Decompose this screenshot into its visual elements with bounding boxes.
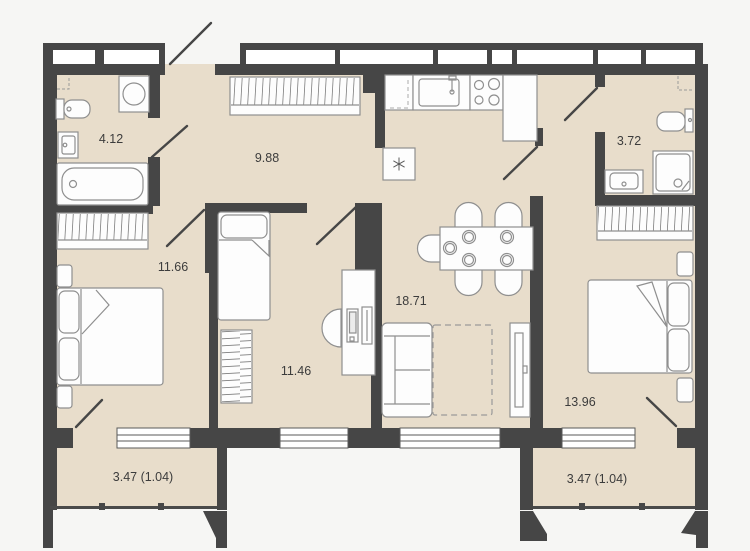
floor-plan-canvas: 4.12 9.88 3.72 11.66 18.71 11.46 13.96 3…: [0, 0, 750, 551]
window-pane: [517, 50, 593, 64]
wall-bedroom-left-middle: [209, 273, 218, 430]
room-label-balcony-left: 3.47 (1.04): [113, 470, 173, 484]
wardrobe-rail: [222, 331, 251, 402]
dining-chair: [495, 269, 522, 296]
window-pane: [598, 50, 641, 64]
nightstand: [57, 265, 72, 287]
pillow: [59, 291, 79, 333]
facade-window-panes: [53, 50, 695, 64]
wall-hall-kitchen-pillar: [363, 64, 385, 93]
window-pane: [53, 50, 95, 64]
window-living: [400, 428, 500, 448]
wall-bathroom-second-left: [595, 132, 605, 196]
wall-exterior-right-foot: [681, 511, 708, 548]
room-label-bathroom-main: 4.12: [99, 132, 123, 146]
balcony-right-glazing: [533, 506, 695, 509]
window-frame: [400, 428, 500, 448]
dining-chair: [455, 269, 482, 296]
floor-plan-svg: 4.12 9.88 3.72 11.66 18.71 11.46 13.96 3…: [0, 0, 750, 551]
wardrobe-rail: [58, 214, 147, 240]
room-label-balcony-right: 3.47 (1.04): [567, 472, 627, 486]
window-pane: [104, 50, 159, 64]
balcony-left-glazing: [50, 506, 217, 509]
bedroom-left-furniture: [57, 213, 163, 408]
window-bedroom-middle: [280, 428, 348, 448]
tv-screen: [515, 333, 523, 407]
wall-balcony-left-foot: [203, 511, 227, 548]
pillow: [59, 338, 79, 380]
balcony-right-glazing-tick-1: [579, 503, 585, 510]
wall-balcony-right-foot: [520, 511, 547, 541]
balcony-right-glazing-tick-2: [639, 503, 645, 510]
bedroom-right-furniture: [588, 206, 693, 402]
nightstand: [677, 252, 693, 276]
window-frame: [280, 428, 348, 448]
wall-bottom-1: [55, 428, 73, 448]
wall-bottom-4: [500, 428, 562, 448]
toilet-tank: [56, 99, 64, 119]
balcony-left-glazing-tick-2: [158, 503, 164, 510]
wall-bathroom-second-bottom: [595, 195, 708, 206]
pillow: [668, 283, 689, 326]
pillow: [668, 329, 689, 371]
pillow: [221, 215, 267, 238]
balcony-left-glazing-tick-1: [99, 503, 105, 510]
window-pane: [438, 50, 487, 64]
wall-bathroom-second-left-stub: [595, 75, 605, 87]
kitchen-counter: [503, 75, 537, 141]
entrance-door-leaf: [170, 23, 211, 64]
wall-balcony-left-side: [217, 448, 227, 510]
wall-bottom-3: [348, 428, 400, 448]
wall-bottom-5: [677, 428, 708, 448]
wall-exterior-left: [43, 43, 57, 510]
monitor-screen: [350, 312, 357, 333]
wall-top-main: [215, 64, 703, 75]
dining-chair: [418, 235, 443, 262]
window-pane: [340, 50, 433, 64]
wall-bottom-2: [190, 428, 280, 448]
room-label-living-kitchen: 18.71: [395, 294, 426, 308]
nightstand: [677, 378, 693, 402]
wall-bathroom-main-right-upper: [148, 75, 160, 118]
nightstand: [57, 386, 72, 408]
bathtub: [57, 163, 148, 205]
room-label-hallway: 9.88: [255, 151, 279, 165]
window-pane: [246, 50, 335, 64]
wall-bathroom-main-right-lower: [148, 157, 160, 206]
hall-wardrobe-rail: [231, 78, 359, 105]
window-bedroom-right: [562, 428, 635, 448]
toilet-bowl: [657, 112, 685, 131]
window-bedroom-left: [117, 428, 190, 448]
room-label-bedroom-right: 13.96: [564, 395, 595, 409]
window-frame: [117, 428, 190, 448]
wardrobe-rail: [598, 207, 692, 231]
hallway-furniture: [230, 77, 360, 115]
window-pane: [492, 50, 512, 64]
shower-tray: [653, 151, 693, 194]
wall-hall-kitchen: [375, 93, 385, 148]
kitchen-sink-unit: [413, 75, 470, 110]
tv-mount: [523, 366, 527, 373]
wall-balcony-right-side: [520, 448, 533, 510]
wall-bedrooms-pillar-left: [205, 203, 218, 273]
dining-chair: [455, 203, 482, 229]
room-label-bedroom-middle: 11.46: [281, 364, 311, 378]
window-pane: [646, 50, 695, 64]
wall-bedrooms-pillar-right: [355, 203, 382, 272]
room-label-bathroom-second: 3.72: [617, 134, 641, 148]
window-frame: [562, 428, 635, 448]
dining-chair: [495, 203, 522, 229]
wall-left-stub: [43, 508, 53, 548]
kitchen-corner-unit: [385, 75, 413, 110]
room-label-bedroom-left: 11.66: [158, 260, 188, 274]
toilet-bowl: [64, 100, 90, 118]
